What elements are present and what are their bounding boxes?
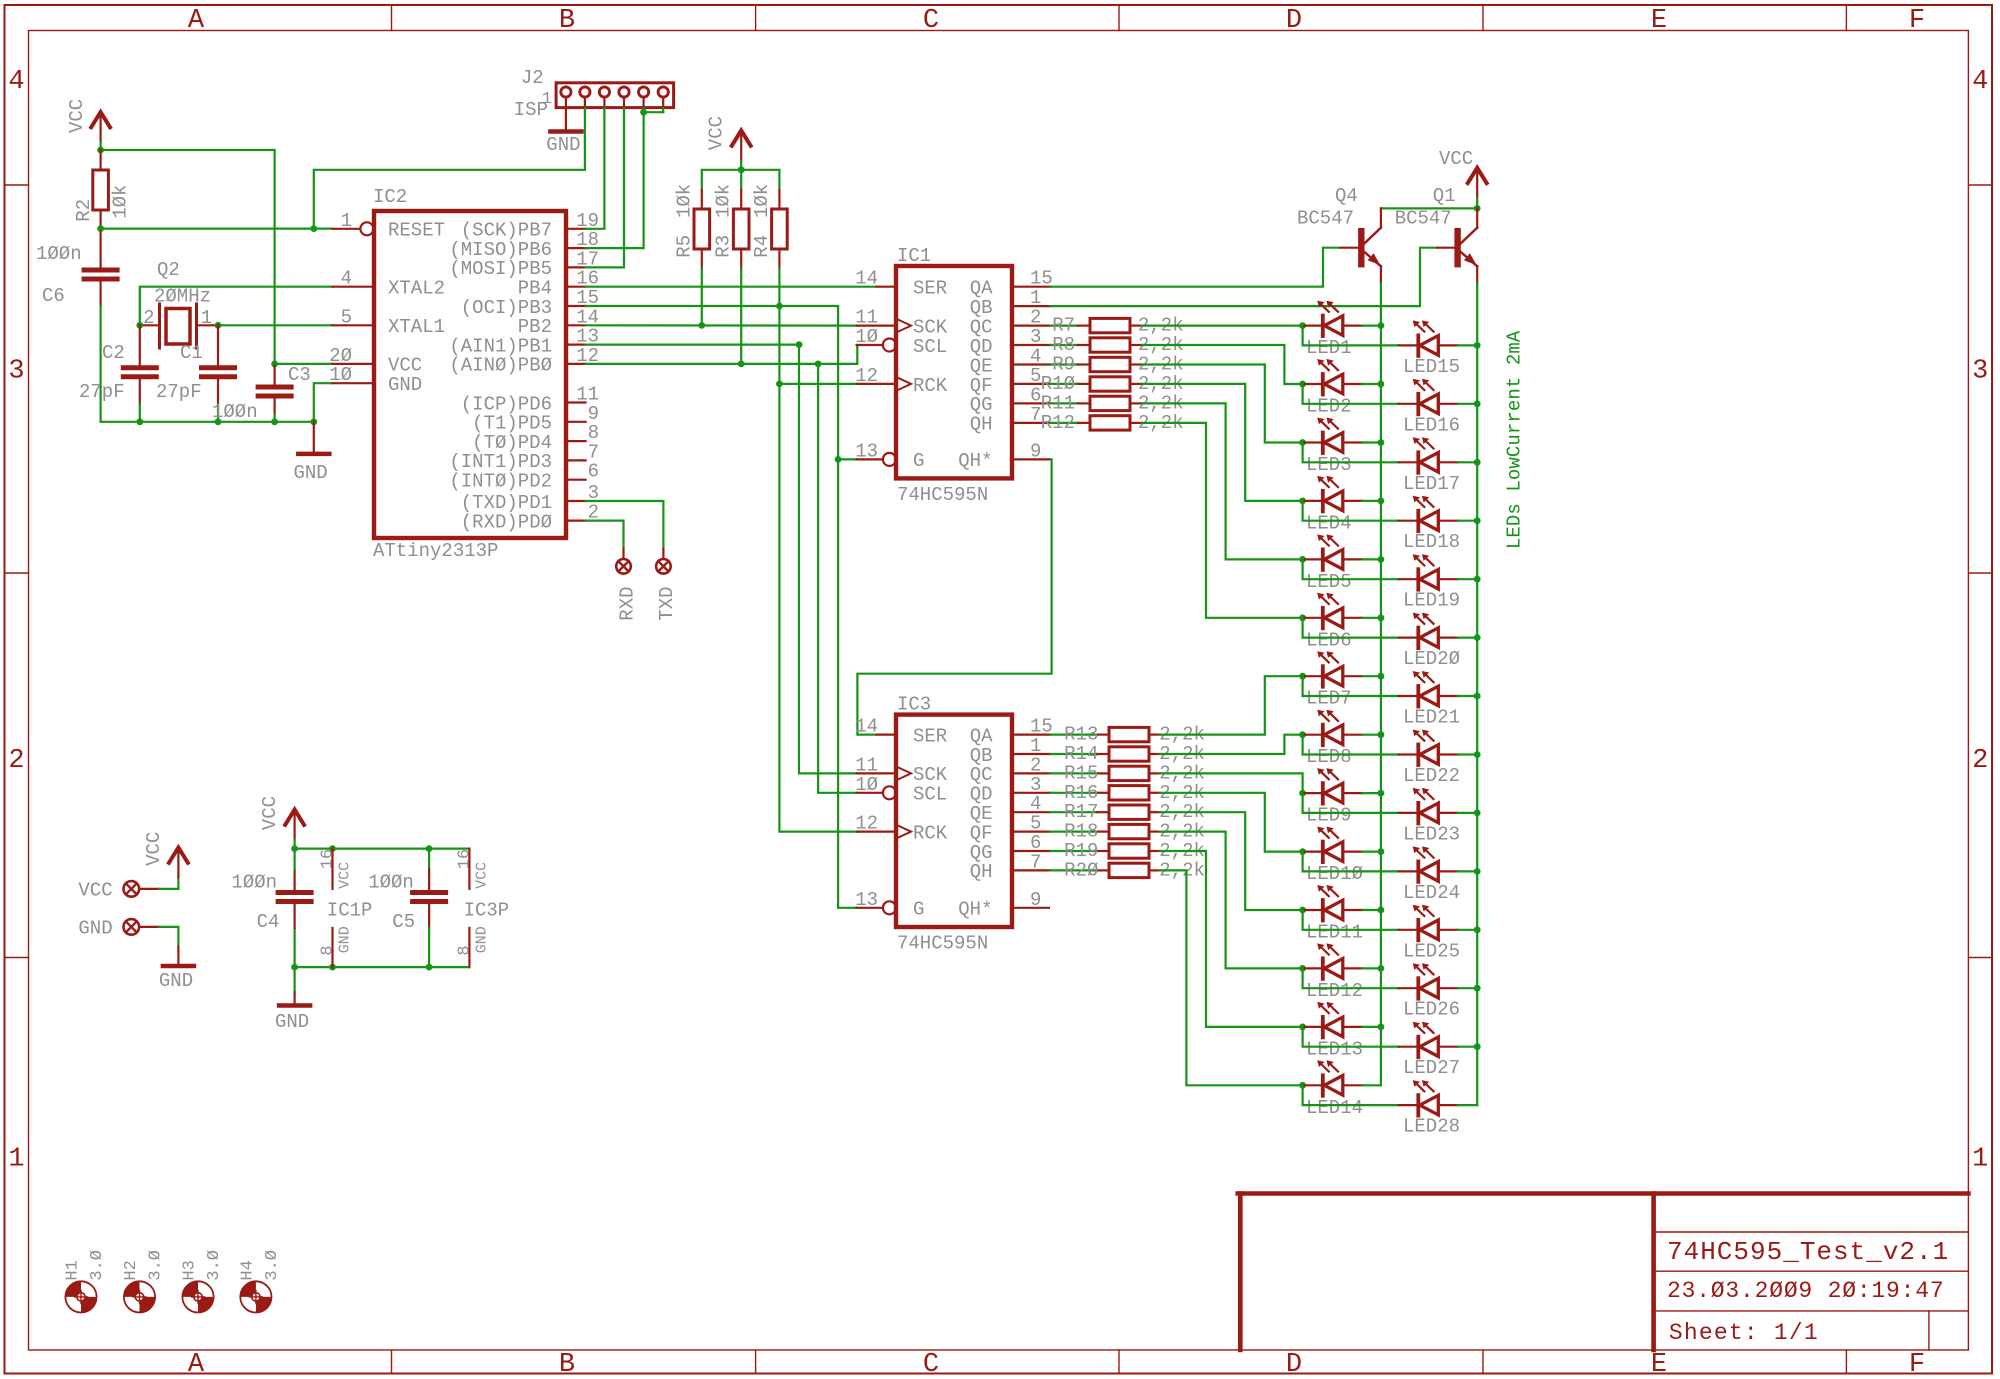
svg-text:LED18: LED18 <box>1403 531 1460 553</box>
svg-text:RXD: RXD <box>617 586 639 620</box>
svg-text:IC3P: IC3P <box>464 899 510 921</box>
svg-text:5: 5 <box>341 306 352 328</box>
svg-text:LED1: LED1 <box>1306 337 1352 359</box>
svg-text:LED17: LED17 <box>1403 473 1460 495</box>
svg-text:VCC: VCC <box>259 796 281 830</box>
svg-text:IC1: IC1 <box>897 245 931 267</box>
svg-text:R5: R5 <box>674 235 696 258</box>
svg-text:6: 6 <box>588 461 599 483</box>
svg-text:R12: R12 <box>1041 412 1075 434</box>
svg-text:1Øk: 1Øk <box>674 184 696 218</box>
svg-text:LED19: LED19 <box>1403 590 1460 612</box>
svg-text:SCL: SCL <box>913 784 947 806</box>
svg-text:XTAL2: XTAL2 <box>388 278 445 300</box>
svg-text:8: 8 <box>318 945 337 955</box>
svg-text:LED11: LED11 <box>1306 922 1363 944</box>
svg-text:VCC: VCC <box>337 862 354 889</box>
svg-text:C4: C4 <box>257 911 280 933</box>
svg-text:LED12: LED12 <box>1306 980 1363 1002</box>
svg-text:1ØØn: 1ØØn <box>231 872 277 894</box>
svg-text:74HC595N: 74HC595N <box>897 933 988 955</box>
svg-text:9: 9 <box>1030 889 1041 911</box>
svg-text:3.Ø: 3.Ø <box>88 1250 107 1281</box>
svg-text:LED26: LED26 <box>1403 999 1460 1021</box>
svg-text:GND: GND <box>337 926 354 953</box>
svg-text:RCK: RCK <box>913 822 948 844</box>
svg-text:D: D <box>1286 1350 1302 1379</box>
svg-text:LED23: LED23 <box>1403 823 1460 845</box>
svg-text:VCC: VCC <box>78 880 112 902</box>
svg-text:F: F <box>1909 1350 1925 1379</box>
svg-text:LED15: LED15 <box>1403 356 1460 378</box>
svg-text:C: C <box>923 6 939 36</box>
svg-text:C3: C3 <box>288 364 311 386</box>
svg-text:LED7: LED7 <box>1306 688 1352 710</box>
svg-text:A: A <box>188 6 205 36</box>
svg-text:SER: SER <box>913 278 947 300</box>
svg-text:LED25: LED25 <box>1403 940 1460 962</box>
svg-text:12: 12 <box>855 813 878 835</box>
svg-text:LED5: LED5 <box>1306 571 1352 593</box>
svg-text:VCC: VCC <box>705 116 727 150</box>
svg-text:RCK: RCK <box>913 375 948 397</box>
svg-text:VCC: VCC <box>474 862 491 889</box>
svg-text:Q2: Q2 <box>157 259 180 281</box>
svg-text:J2: J2 <box>521 67 544 89</box>
svg-text:QH*: QH* <box>958 899 992 921</box>
svg-text:SCL: SCL <box>913 336 947 358</box>
svg-text:27pF: 27pF <box>79 381 125 403</box>
svg-text:H2: H2 <box>122 1260 141 1280</box>
svg-text:LEDs LowCurrent 2mA: LEDs LowCurrent 2mA <box>1503 330 1525 549</box>
svg-text:QH: QH <box>970 414 993 436</box>
svg-text:C1: C1 <box>180 342 203 364</box>
svg-text:LED21: LED21 <box>1403 707 1460 729</box>
svg-text:(AINØ)PBØ: (AINØ)PBØ <box>449 355 552 377</box>
svg-text:Q1: Q1 <box>1433 185 1456 207</box>
svg-text:R2: R2 <box>73 199 95 222</box>
svg-text:2: 2 <box>1972 746 1988 776</box>
svg-text:R4: R4 <box>751 235 773 258</box>
svg-text:BC547: BC547 <box>1297 208 1354 230</box>
svg-text:(INTØ)PD2: (INTØ)PD2 <box>449 471 552 493</box>
svg-text:G: G <box>913 450 924 472</box>
svg-text:E: E <box>1651 1350 1667 1379</box>
svg-text:F: F <box>1909 6 1925 36</box>
svg-text:1Øk: 1Øk <box>712 184 734 218</box>
svg-text:H1: H1 <box>63 1260 82 1280</box>
svg-text:GND: GND <box>78 918 112 940</box>
svg-text:GND: GND <box>275 1011 309 1033</box>
svg-text:H4: H4 <box>238 1260 257 1280</box>
svg-text:LED3: LED3 <box>1306 454 1352 476</box>
svg-text:C2: C2 <box>102 342 125 364</box>
svg-text:1: 1 <box>341 210 352 232</box>
svg-text:E: E <box>1651 6 1667 36</box>
svg-text:TXD: TXD <box>656 586 678 620</box>
svg-text:A: A <box>188 1350 205 1379</box>
svg-text:1ØØn: 1ØØn <box>368 872 414 894</box>
svg-text:LED14: LED14 <box>1306 1097 1363 1119</box>
svg-text:14: 14 <box>855 716 878 738</box>
svg-text:7: 7 <box>1030 851 1041 873</box>
svg-text:D: D <box>1286 6 1302 36</box>
svg-text:3: 3 <box>1972 357 1988 387</box>
svg-text:1Øk: 1Øk <box>751 184 773 218</box>
svg-text:4: 4 <box>1972 67 1988 97</box>
svg-text:H3: H3 <box>180 1260 199 1280</box>
svg-text:LED28: LED28 <box>1403 1116 1460 1138</box>
svg-text:LED2: LED2 <box>1306 396 1352 418</box>
svg-text:74HC595N: 74HC595N <box>897 484 988 506</box>
svg-text:74HC595_Test_v2.1: 74HC595_Test_v2.1 <box>1667 1237 1949 1267</box>
svg-text:IC3: IC3 <box>897 694 931 716</box>
svg-text:LED9: LED9 <box>1306 805 1352 827</box>
svg-text:R2Ø: R2Ø <box>1064 859 1098 881</box>
svg-text:1: 1 <box>542 90 552 109</box>
svg-text:LED13: LED13 <box>1306 1038 1363 1060</box>
svg-text:GND: GND <box>294 462 328 484</box>
svg-text:LED27: LED27 <box>1403 1057 1460 1079</box>
svg-text:LED4: LED4 <box>1306 512 1352 534</box>
svg-text:LED1Ø: LED1Ø <box>1306 863 1363 885</box>
svg-text:12: 12 <box>855 365 878 387</box>
svg-text:IC2: IC2 <box>373 186 407 208</box>
svg-text:27pF: 27pF <box>156 381 202 403</box>
svg-text:B: B <box>559 1350 575 1379</box>
svg-text:4: 4 <box>8 67 24 97</box>
svg-text:13: 13 <box>855 440 878 462</box>
svg-text:1: 1 <box>201 307 212 329</box>
svg-text:3.Ø: 3.Ø <box>205 1250 224 1281</box>
svg-text:SER: SER <box>913 725 947 747</box>
svg-text:QH*: QH* <box>958 450 992 472</box>
svg-text:GND: GND <box>546 134 580 156</box>
svg-text:LED8: LED8 <box>1306 746 1352 768</box>
svg-text:(RXD)PDØ: (RXD)PDØ <box>461 511 552 533</box>
svg-text:RESET: RESET <box>388 220 445 242</box>
svg-text:1: 1 <box>1972 1145 1988 1175</box>
svg-text:9: 9 <box>1030 440 1041 462</box>
svg-text:LED22: LED22 <box>1403 765 1460 787</box>
svg-text:VCC: VCC <box>143 832 165 866</box>
svg-text:3.Ø: 3.Ø <box>147 1250 166 1281</box>
svg-text:Q4: Q4 <box>1335 185 1358 207</box>
svg-text:Sheet: 1/1: Sheet: 1/1 <box>1669 1320 1819 1346</box>
svg-text:1Ø: 1Ø <box>855 326 878 348</box>
svg-text:1Ø: 1Ø <box>855 774 878 796</box>
svg-text:1Ø: 1Ø <box>329 364 352 386</box>
svg-text:13: 13 <box>855 889 878 911</box>
svg-text:G: G <box>913 899 924 921</box>
svg-text:VCC: VCC <box>1439 148 1473 170</box>
svg-text:2ØMHz: 2ØMHz <box>154 286 211 308</box>
svg-text:C5: C5 <box>392 911 415 933</box>
svg-text:BC547: BC547 <box>1395 208 1452 230</box>
svg-text:2: 2 <box>143 307 154 329</box>
svg-text:16: 16 <box>455 849 474 869</box>
svg-text:LED24: LED24 <box>1403 882 1460 904</box>
svg-text:XTAL1: XTAL1 <box>388 316 445 338</box>
svg-text:B: B <box>559 6 575 36</box>
svg-text:14: 14 <box>855 268 878 290</box>
svg-text:1Øk: 1Øk <box>109 185 131 219</box>
svg-text:GND: GND <box>474 926 491 953</box>
svg-text:ATtiny2313P: ATtiny2313P <box>373 540 498 562</box>
svg-text:GND: GND <box>388 374 422 396</box>
svg-text:16: 16 <box>318 849 337 869</box>
svg-text:IC1P: IC1P <box>327 899 373 921</box>
svg-text:C: C <box>923 1350 939 1379</box>
svg-text:VCC: VCC <box>66 99 88 133</box>
svg-text:GND: GND <box>159 970 193 992</box>
svg-text:LED6: LED6 <box>1306 629 1352 651</box>
svg-text:C6: C6 <box>42 285 65 307</box>
svg-text:QH: QH <box>970 861 993 883</box>
svg-text:R3: R3 <box>712 235 734 258</box>
svg-text:23.Ø3.2ØØ9 2Ø:19:47: 23.Ø3.2ØØ9 2Ø:19:47 <box>1667 1278 1944 1304</box>
svg-text:3.Ø: 3.Ø <box>263 1250 282 1281</box>
svg-text:1: 1 <box>8 1145 24 1175</box>
svg-text:LED16: LED16 <box>1403 414 1460 436</box>
svg-text:1ØØn: 1ØØn <box>36 243 82 265</box>
svg-text:3: 3 <box>8 357 24 387</box>
svg-text:2: 2 <box>8 746 24 776</box>
svg-text:LED2Ø: LED2Ø <box>1403 648 1460 670</box>
svg-text:7: 7 <box>1030 404 1041 426</box>
svg-text:8: 8 <box>455 945 474 955</box>
svg-text:4: 4 <box>341 268 352 290</box>
